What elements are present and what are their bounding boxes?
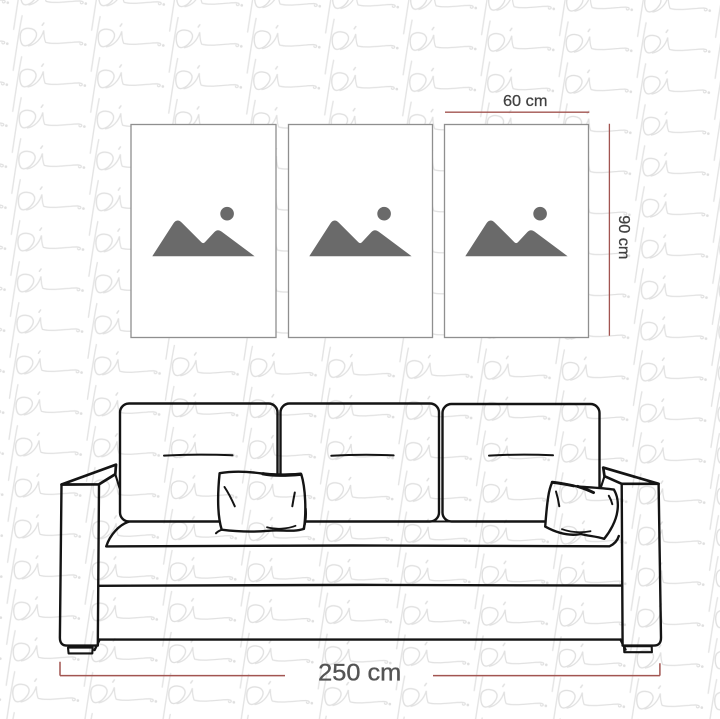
svg-text:250 cm: 250 cm — [318, 660, 401, 686]
svg-text:60 cm: 60 cm — [503, 93, 547, 110]
svg-text:90 cm: 90 cm — [615, 215, 632, 259]
